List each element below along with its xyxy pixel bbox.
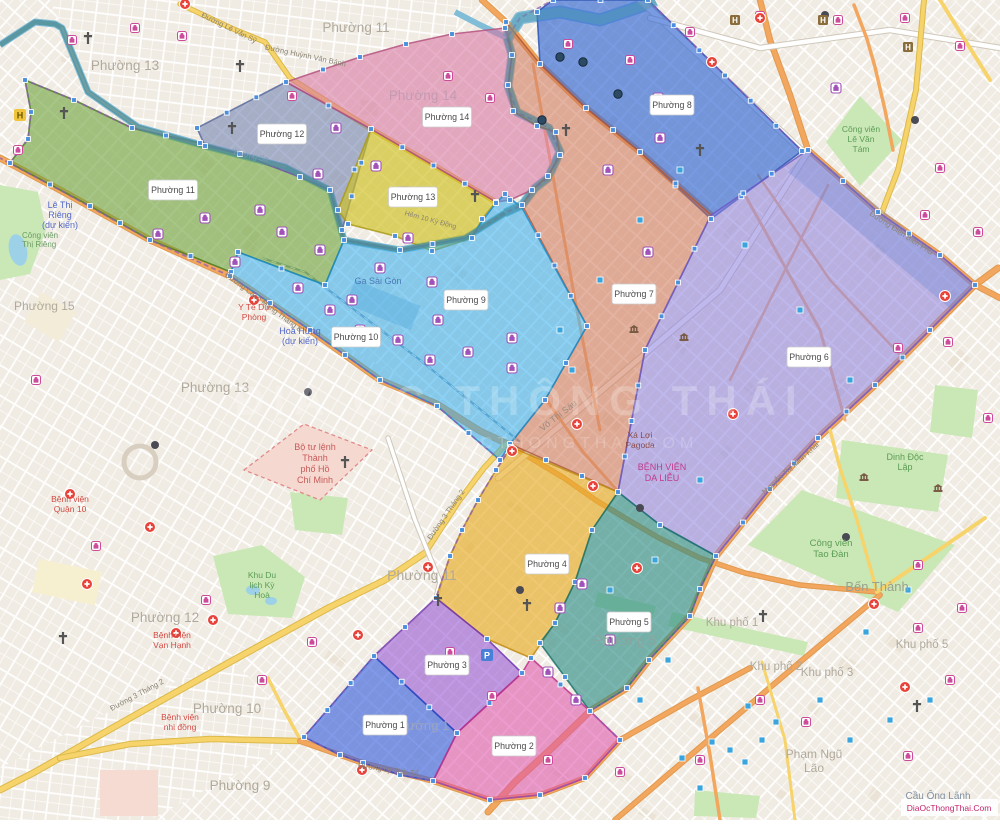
svg-text:Phường 10: Phường 10 bbox=[193, 701, 261, 716]
svg-text:Phường 15: Phường 15 bbox=[14, 299, 75, 313]
svg-text:Phường 13: Phường 13 bbox=[391, 192, 436, 202]
svg-text:Phường 12: Phường 12 bbox=[260, 129, 305, 139]
svg-text:Công viên: Công viên bbox=[842, 124, 881, 134]
svg-text:P: P bbox=[484, 651, 490, 661]
svg-text:Phường 9: Phường 9 bbox=[446, 295, 486, 305]
svg-text:Phường 5: Phường 5 bbox=[594, 632, 657, 648]
svg-text:Phường 3: Phường 3 bbox=[427, 660, 467, 670]
svg-text:BỆNH VIỆN: BỆNH VIỆN bbox=[638, 462, 687, 472]
svg-text:Phường 13: Phường 13 bbox=[91, 58, 159, 73]
svg-text:Riêng: Riêng bbox=[48, 210, 72, 220]
svg-text:Phường 11: Phường 11 bbox=[387, 567, 457, 583]
svg-text:Lão: Lão bbox=[804, 761, 824, 775]
svg-text:Phòng: Phòng bbox=[242, 312, 267, 322]
svg-text:Phường 11: Phường 11 bbox=[322, 20, 389, 35]
svg-text:ĐỊA ỐC THÔNG THÁI: ĐỊA ỐC THÔNG THÁI bbox=[234, 376, 805, 424]
svg-text:DA LIỄU: DA LIỄU bbox=[645, 472, 680, 483]
svg-text:Khu Du: Khu Du bbox=[248, 570, 277, 580]
svg-text:H: H bbox=[17, 110, 24, 120]
svg-text:Phường 2: Phường 2 bbox=[494, 741, 534, 751]
svg-text:Bến Thành: Bến Thành bbox=[845, 579, 908, 594]
svg-text:Lê Văn: Lê Văn bbox=[848, 134, 875, 144]
svg-text:Dinh Độc: Dinh Độc bbox=[886, 452, 924, 462]
svg-text:Bệnh viện: Bệnh viện bbox=[153, 630, 191, 640]
svg-text:nhi đồng: nhi đồng bbox=[164, 722, 197, 732]
svg-text:Chí Minh: Chí Minh bbox=[297, 475, 333, 485]
svg-text:Vạn Hạnh: Vạn Hạnh bbox=[153, 640, 191, 650]
svg-text:(dự kiến): (dự kiến) bbox=[282, 336, 318, 346]
svg-text:DIAOCTHONGTHAI.COM: DIAOCTHONGTHAI.COM bbox=[422, 435, 699, 452]
svg-text:Phường 8: Phường 8 bbox=[652, 100, 692, 110]
svg-text:Công viên: Công viên bbox=[22, 231, 58, 240]
svg-text:Phường 14: Phường 14 bbox=[425, 112, 470, 122]
svg-text:Phường 10: Phường 10 bbox=[334, 332, 379, 342]
svg-text:Phạm Ngũ: Phạm Ngũ bbox=[786, 747, 843, 761]
svg-text:lịch Kỳ: lịch Kỳ bbox=[249, 580, 275, 590]
svg-text:Phường 1: Phường 1 bbox=[365, 720, 405, 730]
svg-text:Phường 14: Phường 14 bbox=[389, 88, 458, 103]
svg-text:Khu phố 3: Khu phố 3 bbox=[801, 667, 853, 679]
svg-text:Khu phố 1: Khu phố 1 bbox=[706, 617, 758, 629]
svg-text:phố Hồ: phố Hồ bbox=[300, 464, 329, 474]
svg-text:Tám: Tám bbox=[853, 144, 870, 154]
svg-text:Quận 10: Quận 10 bbox=[54, 504, 87, 514]
svg-text:H: H bbox=[732, 16, 738, 25]
svg-text:Phường 9: Phường 9 bbox=[210, 778, 271, 793]
svg-text:Phường 5: Phường 5 bbox=[609, 617, 649, 627]
svg-text:DiaOcThongThai.Com: DiaOcThongThai.Com bbox=[907, 803, 992, 813]
svg-text:Tao Đàn: Tao Đàn bbox=[813, 549, 848, 560]
svg-text:Phường 4: Phường 4 bbox=[527, 559, 567, 569]
svg-text:Phường 12: Phường 12 bbox=[131, 610, 199, 625]
svg-text:Lê Thị: Lê Thị bbox=[48, 200, 73, 210]
svg-text:Thị Riêng: Thị Riêng bbox=[22, 240, 56, 249]
svg-text:Phường 11: Phường 11 bbox=[151, 185, 195, 195]
svg-text:H: H bbox=[905, 43, 911, 52]
svg-text:Ga Sài Gòn: Ga Sài Gòn bbox=[354, 276, 401, 286]
svg-text:(dự kiến): (dự kiến) bbox=[42, 220, 78, 230]
svg-text:Công viên: Công viên bbox=[810, 538, 853, 549]
svg-text:Bệnh viện: Bệnh viện bbox=[161, 712, 199, 722]
svg-text:Phường 7: Phường 7 bbox=[614, 289, 654, 299]
svg-text:Khu phố 5: Khu phố 5 bbox=[896, 639, 948, 651]
svg-text:H: H bbox=[820, 16, 826, 25]
svg-text:Thành: Thành bbox=[302, 453, 328, 463]
svg-text:Bộ tư lệnh: Bộ tư lệnh bbox=[294, 442, 336, 452]
svg-text:Lập: Lập bbox=[897, 462, 912, 472]
svg-text:Bệnh viện: Bệnh viện bbox=[51, 494, 89, 504]
svg-text:Phường 6: Phường 6 bbox=[789, 352, 829, 362]
svg-text:Hoà: Hoà bbox=[254, 590, 270, 600]
svg-text:Khu phố 2: Khu phố 2 bbox=[750, 661, 802, 673]
